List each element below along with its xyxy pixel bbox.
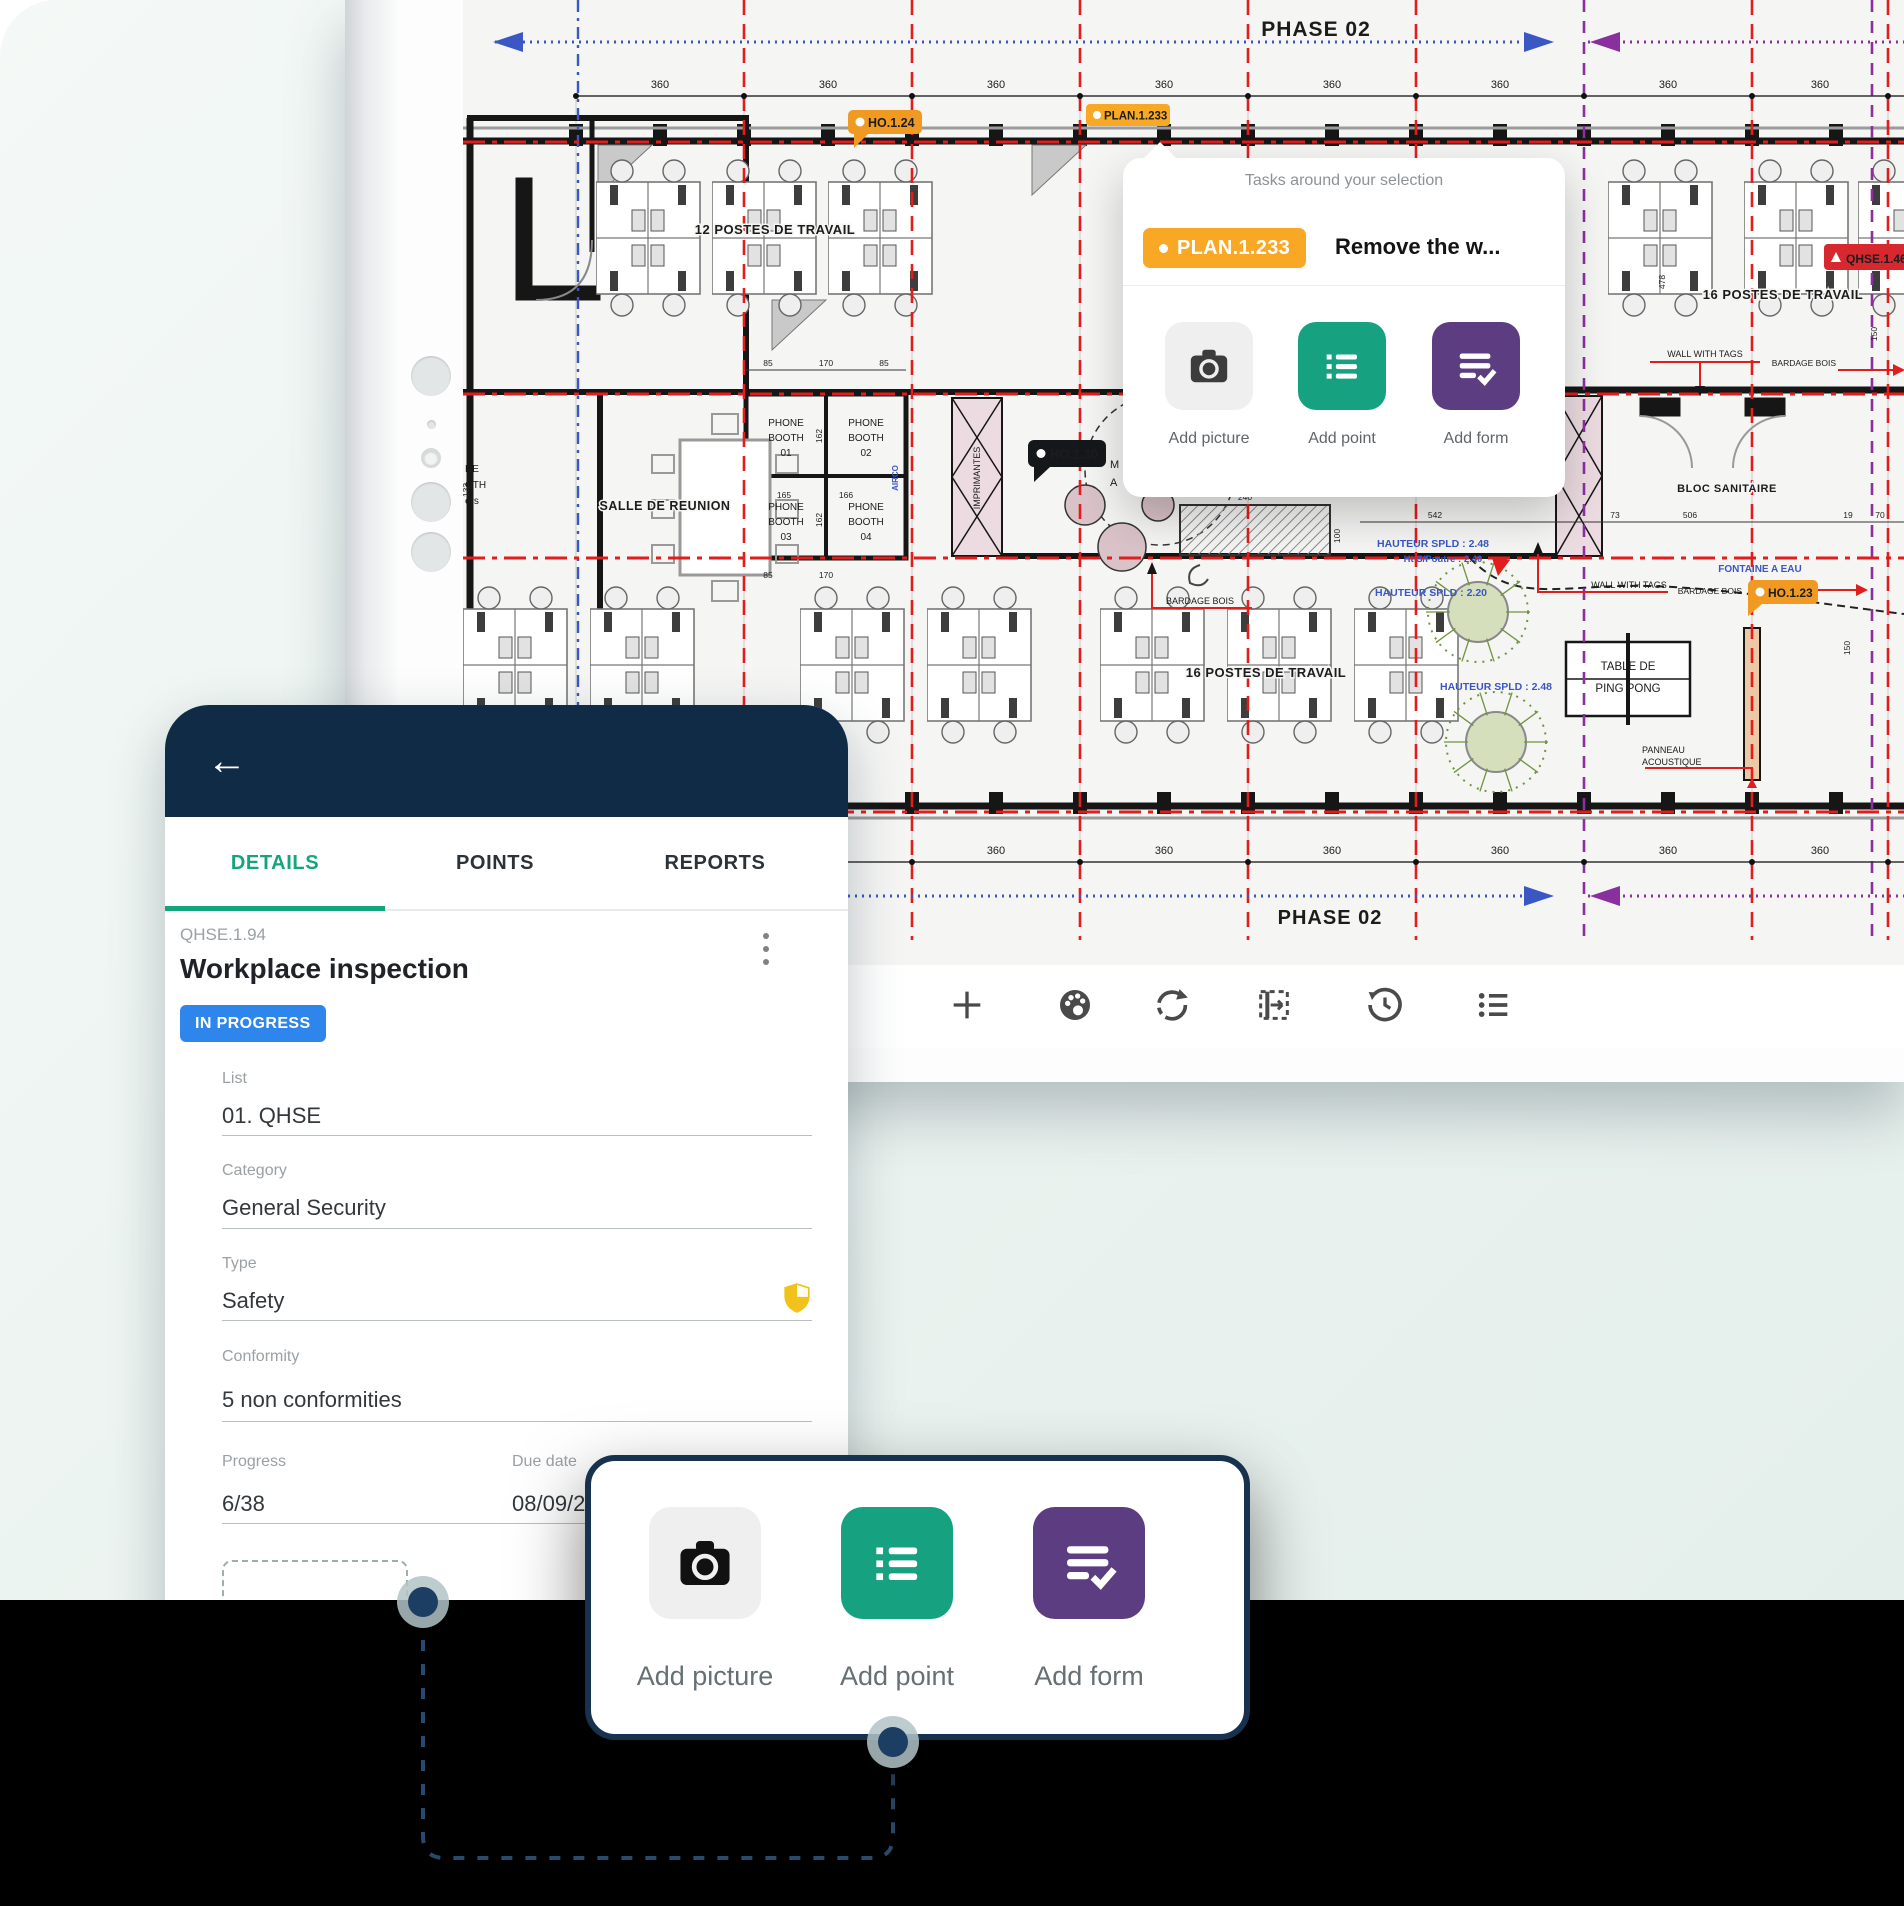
connector-dot-1	[397, 1576, 449, 1628]
label-hauteur-220: HAUTEUR SPLD : 2.20	[1375, 587, 1487, 599]
tab-details[interactable]: DETAILS	[165, 817, 385, 909]
palette-button[interactable]	[1047, 977, 1103, 1033]
label-ping-1: TABLE DE	[1601, 661, 1656, 673]
tab-reports[interactable]: REPORTS	[605, 817, 825, 909]
booth3-num: 03	[780, 532, 792, 543]
dim-360-label: 360	[651, 79, 669, 91]
field-type-value[interactable]: Safety	[222, 1288, 284, 1314]
label-bloc-sanitaire: BLOC SANITAIRE	[1677, 483, 1777, 495]
plus-icon	[947, 985, 987, 1025]
add-button[interactable]	[939, 977, 995, 1033]
sheet-add-form-button[interactable]	[1033, 1507, 1145, 1619]
tablet-sensor-dot	[427, 420, 436, 429]
field-category-value[interactable]: General Security	[222, 1195, 386, 1221]
label-panneau-1: PANNEAU	[1642, 745, 1685, 755]
label-hauteur-248: HAUTEUR SPLD : 2.48	[1377, 538, 1489, 550]
add-picture-label: Add picture	[1144, 430, 1274, 448]
form-check-icon	[1058, 1532, 1120, 1594]
booth4-l2: BOOTH	[848, 517, 884, 528]
popup-pointer	[1143, 142, 1177, 159]
sheet-add-picture-label: Add picture	[595, 1661, 815, 1692]
redo-button[interactable]	[1144, 977, 1200, 1033]
dim-162b: 162	[814, 513, 824, 527]
dim-360-label: 360	[1491, 845, 1509, 857]
add-picture-button[interactable]	[1165, 322, 1253, 410]
sheet-add-picture-button[interactable]	[649, 1507, 761, 1619]
field-conformity-label: Conformity	[222, 1348, 299, 1366]
sheet-add-point-label: Add point	[787, 1661, 1007, 1692]
label-bardage-top: BARDAGE BOIS	[1772, 358, 1837, 368]
status-badge: IN PROGRESS	[180, 1005, 326, 1042]
connector-dot-2	[867, 1716, 919, 1768]
dim-19: 19	[1843, 510, 1853, 520]
phase-label-bottom: PHASE 02	[1278, 907, 1383, 929]
field-type-label: Type	[222, 1255, 257, 1273]
task-title: Workplace inspection	[180, 953, 469, 985]
field-progress-value[interactable]: 6/38	[222, 1491, 265, 1517]
field-list-underline	[222, 1135, 812, 1136]
camera-icon	[674, 1532, 736, 1594]
marketing-canvas: 3603603603603603603603603603603603603603…	[0, 0, 1904, 1906]
label-16-postes-top: 16 POSTES DE TRAVAIL	[1703, 287, 1864, 302]
dim-73: 73	[1610, 510, 1620, 520]
point-list-icon	[866, 1532, 928, 1594]
popup-badge-label: PLAN.1.233	[1177, 237, 1290, 260]
dim-360-label: 360	[987, 845, 1005, 857]
field-list-value[interactable]: 01. QHSE	[222, 1103, 321, 1129]
popup-task-title[interactable]: Remove the w...	[1335, 234, 1500, 260]
dim-360-label: 360	[1155, 79, 1173, 91]
list-button[interactable]	[1466, 977, 1522, 1033]
booth1-num: 01	[780, 448, 792, 459]
dim-478: 478	[1657, 275, 1667, 289]
tablet-camera	[411, 356, 451, 396]
booth2-l2: BOOTH	[848, 433, 884, 444]
redo-icon	[1152, 985, 1192, 1025]
label-wall-tags-top: WALL WITH TAGS	[1667, 349, 1743, 359]
field-due-value[interactable]: 08/09/2	[512, 1491, 585, 1517]
label-a: A	[1110, 477, 1118, 489]
add-form-label: Add form	[1411, 430, 1541, 448]
pin-plan1233[interactable]: PLAN.1.233	[1086, 104, 1170, 126]
history-icon	[1365, 985, 1405, 1025]
phase-label-top: PHASE 02	[1261, 18, 1371, 41]
tablet-camera-2	[411, 482, 451, 522]
dim-360-label: 360	[1659, 79, 1677, 91]
sheet-add-point-button[interactable]	[841, 1507, 953, 1619]
label-bardage-right: BARDAGE BOIS	[1678, 586, 1743, 596]
dim-166: 166	[839, 490, 853, 500]
field-category-label: Category	[222, 1162, 287, 1180]
list-icon	[1474, 985, 1514, 1025]
tasks-popup: Tasks around your selection PLAN.1.233 R…	[1123, 158, 1565, 497]
popup-title: Tasks around your selection	[1123, 172, 1565, 190]
form-check-icon	[1453, 343, 1499, 389]
label-imprimantes: IMPRIMANTES	[972, 447, 982, 510]
dim-165: 165	[777, 490, 791, 500]
label-fragment-2: OTH	[465, 480, 486, 491]
dim-85c: 85	[763, 570, 773, 580]
dim-85b: 85	[879, 358, 889, 368]
label-salle-reunion: SALLE DE REUNION	[600, 499, 731, 513]
transform-icon	[1254, 985, 1294, 1025]
back-arrow-icon[interactable]: ←	[207, 737, 247, 785]
phone-header: ←	[165, 705, 848, 817]
dim-85: 85	[763, 358, 773, 368]
booth2-l1: PHONE	[848, 418, 884, 429]
label-12-postes: 12 POSTES DE TRAVAIL	[695, 222, 856, 237]
dim-100: 100	[1332, 529, 1342, 543]
popup-divider	[1123, 285, 1565, 286]
dim-150b: 150	[1842, 641, 1852, 655]
task-code: QHSE.1.94	[180, 925, 266, 945]
pin-qhse146[interactable]: QHSE.1.46	[1824, 244, 1904, 270]
label-ping-2: PING PONG	[1595, 683, 1660, 695]
field-conformity-value[interactable]: 5 non conformities	[222, 1387, 402, 1413]
camera-icon	[1186, 343, 1232, 389]
dim-360-label: 360	[1491, 79, 1509, 91]
booth3-l1: PHONE	[768, 502, 804, 513]
pin-qhse146-label: QHSE.1.46	[1846, 252, 1904, 266]
action-sheet: Add picture Add point Add form	[585, 1455, 1250, 1740]
dim-360-label: 360	[1323, 79, 1341, 91]
field-type-underline	[222, 1320, 812, 1321]
field-category-underline	[222, 1228, 812, 1229]
label-16-postes-bottom: 16 POSTES DE TRAVAIL	[1186, 665, 1347, 680]
label-fontaine: FONTAINE A EAU	[1718, 564, 1802, 575]
dim-150: 150	[1869, 327, 1879, 341]
dim-506: 506	[1683, 510, 1697, 520]
field-progress-underline	[222, 1523, 637, 1524]
dim-360-label: 360	[1811, 845, 1829, 857]
dim-162: 162	[814, 429, 824, 443]
shield-icon	[783, 1283, 811, 1318]
dim-170: 170	[819, 358, 833, 368]
field-conformity-underline	[222, 1421, 812, 1422]
dim-70: 70	[1875, 510, 1885, 520]
transform-button[interactable]	[1246, 977, 1302, 1033]
label-fragment-3: ers	[465, 496, 479, 507]
phone-tabs: DETAILS POINTS REPORTS	[165, 817, 848, 911]
field-list-label: List	[222, 1070, 247, 1088]
dim-170b: 170	[819, 570, 833, 580]
badge-dot-icon	[1159, 244, 1168, 253]
booth1-l2: BOOTH	[768, 433, 804, 444]
field-progress-label: Progress	[222, 1453, 286, 1471]
sheet-add-form-label: Add form	[979, 1661, 1199, 1692]
history-button[interactable]	[1357, 977, 1413, 1033]
pin-ho124-label: HO.1.24	[868, 116, 915, 130]
pin-ho123-label: HO.1.23	[1768, 586, 1813, 600]
dim-360-label: 360	[1323, 845, 1341, 857]
palette-icon	[1055, 985, 1095, 1025]
pin-ho110-label: HO.1.10	[1050, 447, 1098, 462]
booth3-l2: BOOTH	[768, 517, 804, 528]
dim-360-label: 360	[819, 79, 837, 91]
kebab-menu-icon[interactable]	[751, 933, 781, 979]
tablet-camera-3	[411, 532, 451, 572]
dim-542: 542	[1428, 510, 1442, 520]
booth2-num: 02	[860, 448, 872, 459]
label-bardage-left: BARDAGE BOIS	[1166, 596, 1234, 606]
dim-360-label: 360	[1811, 79, 1829, 91]
label-poutre: Ht S/Poutre : 2.40	[1404, 554, 1483, 565]
booth4-num: 04	[860, 532, 872, 543]
field-due-label: Due date	[512, 1453, 577, 1471]
label-wall-tags-bottom: WALL WITH TAGS	[1591, 580, 1667, 590]
label-m: M	[1110, 459, 1119, 471]
dim-360-label: 360	[987, 79, 1005, 91]
add-point-label: Add point	[1277, 430, 1407, 448]
tablet-lens-ring	[421, 448, 441, 468]
label-panneau-2: ACOUSTIQUE	[1642, 757, 1702, 767]
dim-360-label: 360	[1659, 845, 1677, 857]
tab-points[interactable]: POINTS	[385, 817, 605, 909]
booth1-l1: PHONE	[768, 418, 804, 429]
add-form-button[interactable]	[1432, 322, 1520, 410]
pin-plan1233-label: PLAN.1.233	[1104, 111, 1167, 123]
popup-task-badge[interactable]: PLAN.1.233	[1143, 228, 1306, 268]
point-list-icon	[1319, 343, 1365, 389]
label-airco: AIRCO	[891, 465, 900, 491]
booth4-l1: PHONE	[848, 502, 884, 513]
dim-360-label: 360	[1155, 845, 1173, 857]
label-hauteur-248b: HAUTEUR SPLD : 2.48	[1440, 681, 1552, 693]
add-point-button[interactable]	[1298, 322, 1386, 410]
label-fragment-1: NE	[465, 464, 479, 475]
